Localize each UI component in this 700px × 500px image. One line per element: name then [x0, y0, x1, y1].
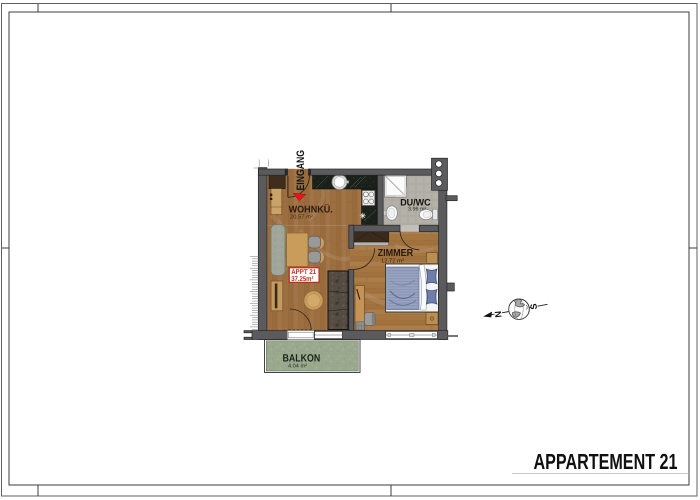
svg-text:37.25m²: 37.25m² — [291, 276, 314, 283]
svg-text:3.96 m²: 3.96 m² — [408, 207, 426, 213]
svg-text:S: S — [528, 303, 539, 310]
svg-text:APPT 21: APPT 21 — [291, 269, 316, 276]
svg-text:20.57 m²: 20.57 m² — [290, 214, 313, 221]
svg-text:N: N — [493, 311, 504, 319]
svg-text:APPARTEMENT 21: APPARTEMENT 21 — [534, 449, 678, 474]
svg-text:12.72 m²: 12.72 m² — [381, 257, 404, 264]
svg-text:4.04 m²: 4.04 m² — [288, 364, 307, 370]
svg-text:EINGANG: EINGANG — [295, 150, 307, 191]
